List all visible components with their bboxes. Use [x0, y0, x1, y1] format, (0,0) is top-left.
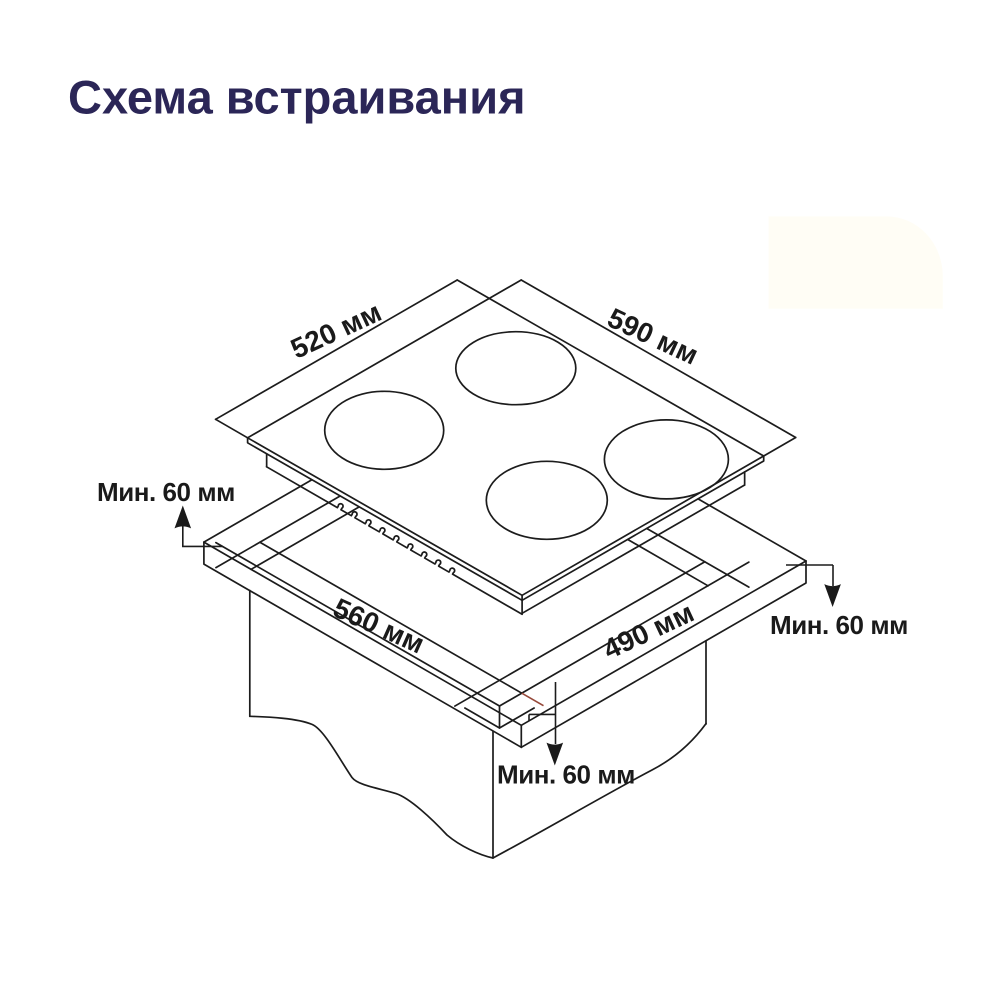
svg-text:Мин. 60 мм: Мин. 60 мм [97, 477, 235, 507]
svg-text:Схема встраивания: Схема встраивания [68, 71, 526, 124]
svg-text:Мин. 60 мм: Мин. 60 мм [770, 610, 908, 640]
svg-text:490 мм: 490 мм [598, 597, 698, 666]
svg-text:Мин. 60 мм: Мин. 60 мм [497, 760, 635, 790]
svg-text:560 мм: 560 мм [329, 592, 429, 659]
svg-text:520 мм: 520 мм [286, 296, 386, 365]
svg-text:590 мм: 590 мм [603, 302, 703, 371]
